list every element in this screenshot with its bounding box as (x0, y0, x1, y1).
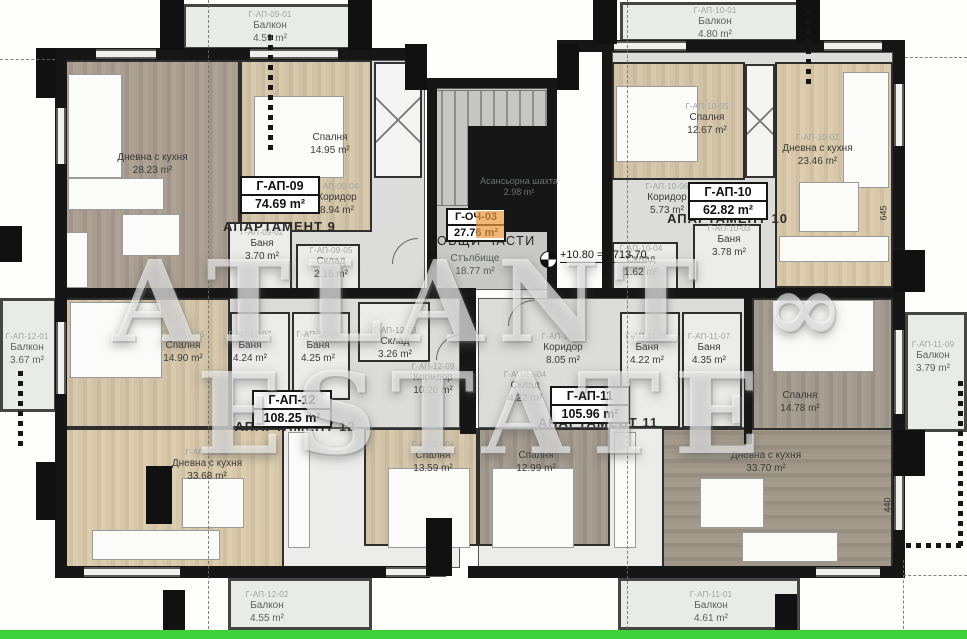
wall (460, 288, 476, 434)
room-label-balcony: Г-АП-11-01 Балкон 4.61 m² (668, 590, 754, 625)
room-label-storage: Г-АП-09-05 Склад 2.16 m² (301, 246, 361, 281)
apartment-9-box: Г-АП-09 74.69 m² (240, 176, 320, 214)
pier (557, 44, 579, 90)
pier (0, 226, 22, 262)
pier (893, 250, 925, 292)
orange-highlight (476, 211, 504, 238)
axis-line (0, 59, 55, 60)
furniture-sofa (68, 178, 164, 210)
furniture-dining-table (799, 182, 859, 232)
dimension-text: 440 (883, 497, 893, 512)
apt11-bathroom-2 (682, 312, 742, 428)
dotted-line (268, 30, 273, 150)
furniture-kitchen-counter (64, 232, 88, 288)
window (84, 567, 180, 577)
axis-line (208, 0, 209, 639)
pier (160, 0, 184, 50)
axis-line (627, 0, 628, 639)
room-label-stairs: Стълбище 18.77 m² (436, 253, 514, 278)
room-label-bedroom: Спалня 14.95 m² (285, 132, 375, 157)
window (824, 41, 882, 51)
room-label-balcony: Г-АП-10-01 Балкон 4.80 m² (660, 6, 770, 41)
pier (163, 590, 185, 634)
pier (348, 0, 372, 50)
pier (893, 430, 925, 476)
axis-line (905, 57, 967, 58)
room-label-balcony: Г-АП-12-01 Балкон 3.67 m² (0, 332, 60, 367)
pier (775, 594, 797, 634)
furniture-dining-table (122, 214, 180, 256)
room-label-corridor: Г-АП-11-05 Коридор 8.05 m² (530, 332, 596, 367)
room-label-bedroom: Спалня 12.99 m² (498, 450, 574, 475)
room-label-bathroom: Г-АП-12-07 Баня 4.24 m² (220, 330, 280, 365)
room-label-storage: Г-АП-12-03 Склад 3.26 m² (364, 326, 426, 361)
pier (405, 44, 427, 90)
window (56, 108, 66, 164)
furniture-dining-table (700, 478, 764, 528)
furniture-dining-table (182, 478, 244, 528)
wall (427, 78, 557, 88)
room-label-bathroom: Г-АП-11-06 Баня 4.22 m² (618, 332, 676, 367)
dotted-line (958, 378, 963, 546)
furniture-kitchen-counter (779, 236, 889, 262)
wall (55, 48, 67, 300)
furniture-sofa (742, 532, 838, 562)
pier (593, 0, 617, 44)
pier (426, 518, 452, 576)
furniture-bed (492, 468, 574, 548)
room-label-bedroom: Г-АП-12-06 Спалня 14.90 m² (146, 330, 220, 365)
floor-plan: Г-АП-09-01 Балкон 4.59 m² Дневна с кухня… (0, 0, 967, 639)
pier (36, 462, 56, 520)
apartment-10-box: Г-АП-10 62.82 m² (688, 182, 768, 220)
elevation-compass-icon (540, 251, 557, 268)
pier (36, 48, 56, 98)
furniture-sofa (843, 72, 889, 188)
window (816, 567, 880, 577)
dotted-line (906, 543, 966, 548)
dotted-line (18, 368, 23, 446)
room-label-bedroom: Г-АП-10-05 Спалня 12.67 m² (662, 102, 752, 137)
apartment-12-box: Г-АП-12 108.25 m² (252, 390, 332, 428)
room-label-storage: Г-АП-11-04 Склад 4.22 m² (494, 370, 556, 405)
room-label-bedroom: Г-АП-12-04 Спалня 13.59 m² (392, 440, 474, 475)
room-label-balcony: Г-АП-09-01 Балкон 4.59 m² (215, 10, 325, 45)
furniture-kitchen-counter (614, 432, 636, 548)
room-label-living: Дневна с кухня 33.70 m² (718, 450, 814, 475)
room-label-bathroom: Г-АП-12-08 Баня 4.25 m² (288, 330, 348, 365)
window (894, 84, 904, 146)
room-label-balcony: Г-АП-12-02 Балкон 4.55 m² (224, 590, 310, 625)
room-label-balcony: Г-АП-11-09 Балкон 3.79 m² (902, 340, 964, 375)
wall (55, 288, 460, 298)
bottom-green-line (0, 630, 967, 639)
room-label-bedroom: Спалня 14.78 m² (762, 390, 838, 415)
room-label-bathroom: Г-АП-10-03 Баня 3.78 m² (698, 224, 760, 259)
room-label-living: Г-АП-10-02 Дневна с кухня 23.46 m² (770, 133, 865, 168)
window (96, 49, 156, 59)
axis-line (903, 560, 904, 639)
room-label-elevator: Асансьорна шахта 2.98 m² (474, 176, 564, 199)
axis-line (903, 575, 967, 576)
room-label-living: Дневна с кухня 28.23 m² (95, 152, 210, 177)
furniture-bed (772, 300, 874, 372)
window (894, 470, 904, 530)
wall (744, 296, 752, 444)
furniture-sofa (92, 530, 220, 560)
dimension-text: 645 (879, 205, 889, 220)
furniture-kitchen-counter (288, 432, 310, 548)
room-label-living: Г-АП-12-05 Дневна с кухня 33.68 m² (158, 448, 256, 483)
window (614, 41, 686, 51)
apartment-9-name: АПАРТАМЕНТ 9 (212, 219, 347, 234)
apartment-11-box: Г-АП-11 105.96 m² (550, 386, 630, 424)
room-label-corridor: Г-АП-12-09 Коридор 10.20 m² (400, 362, 466, 397)
room-label-bathroom: Г-АП-11-07 Баня 4.35 m² (680, 332, 738, 367)
elevation-mark: +10.80 = +713.70 (560, 249, 647, 263)
window (250, 49, 338, 59)
dotted-line (806, 6, 811, 84)
